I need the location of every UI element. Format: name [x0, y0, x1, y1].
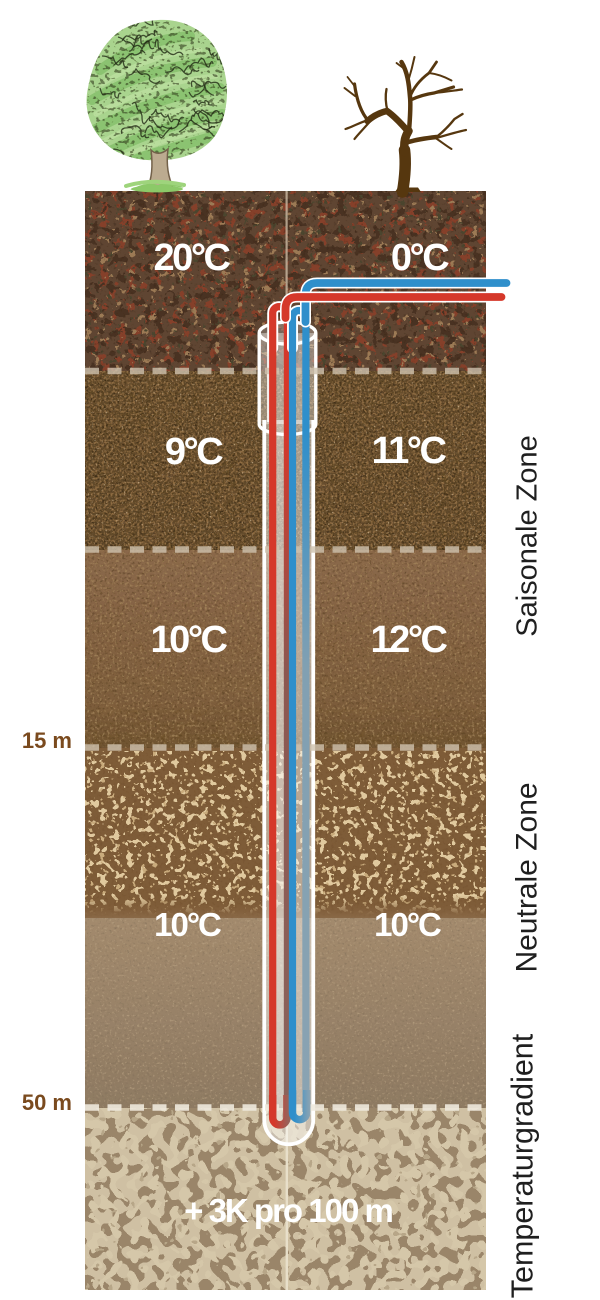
svg-text:9°C: 9°C	[165, 431, 223, 473]
svg-text:10°C: 10°C	[151, 619, 228, 661]
svg-text:12°C: 12°C	[371, 619, 448, 661]
svg-text:10°C: 10°C	[154, 906, 221, 943]
svg-text:+ 3K pro 100 m: + 3K pro 100 m	[184, 1192, 392, 1229]
svg-text:Saisonale Zone: Saisonale Zone	[512, 435, 544, 637]
svg-text:0°C: 0°C	[391, 237, 449, 279]
svg-text:15 m: 15 m	[22, 728, 72, 753]
svg-text:11°C: 11°C	[372, 430, 447, 472]
svg-text:Temperaturgradient: Temperaturgradient	[506, 1033, 540, 1298]
svg-text:50 m: 50 m	[22, 1090, 72, 1115]
svg-text:Neutrale Zone: Neutrale Zone	[511, 782, 544, 972]
svg-text:20°C: 20°C	[154, 237, 231, 279]
svg-text:10°C: 10°C	[374, 906, 441, 943]
